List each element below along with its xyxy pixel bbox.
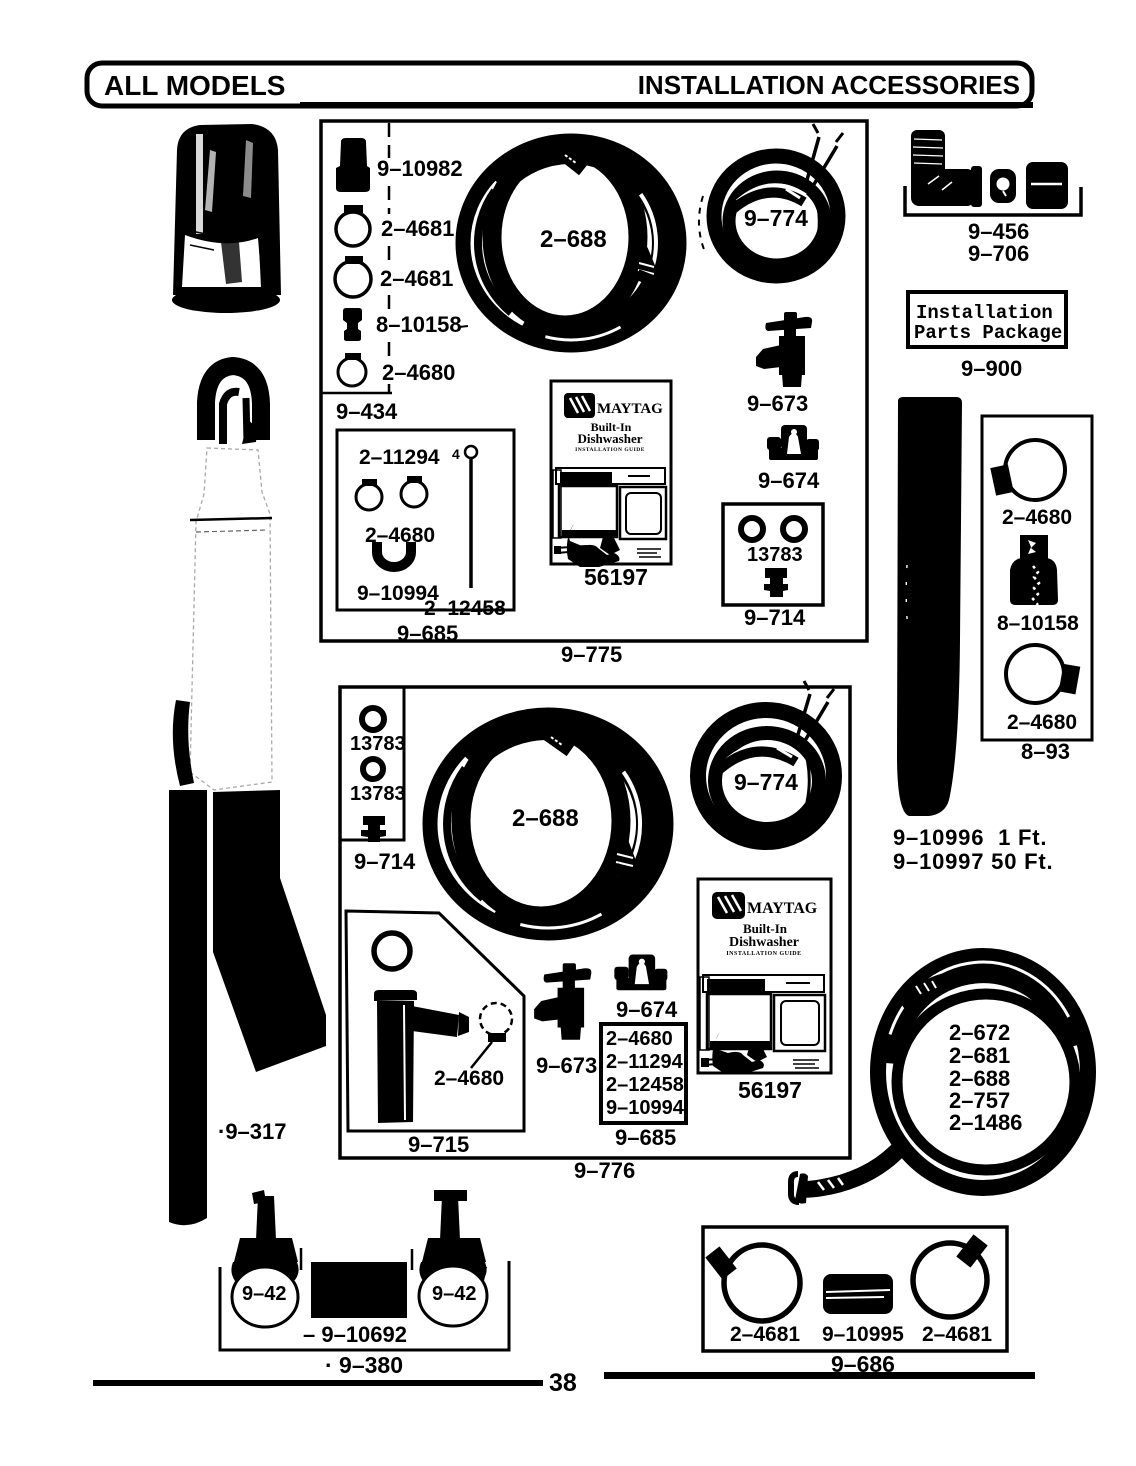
svg-text:9–10995: 9–10995 — [822, 1323, 904, 1346]
svg-text:9–714: 9–714 — [354, 849, 416, 874]
svg-text:2–4680: 2–4680 — [382, 360, 455, 385]
svg-text:2–4680: 2–4680 — [606, 1028, 673, 1050]
svg-text:INSTALLATION GUIDE: INSTALLATION GUIDE — [575, 447, 645, 453]
svg-text:INSTALLATION GUIDE: INSTALLATION GUIDE — [726, 951, 801, 957]
svg-text:8–93: 8–93 — [1021, 739, 1070, 764]
svg-text:· 9–380: · 9–380 — [325, 1352, 403, 1378]
svg-text:Dishwasher: Dishwasher — [729, 935, 799, 950]
svg-text:2–672: 2–672 — [949, 1020, 1010, 1045]
svg-text:9–674: 9–674 — [758, 468, 820, 493]
svg-text:9–706: 9–706 — [968, 241, 1029, 266]
svg-text:INSTALLATION ACCESSORIES: INSTALLATION ACCESSORIES — [638, 70, 1020, 100]
svg-text:2–688: 2–688 — [540, 226, 607, 253]
svg-text:Installation: Installation — [916, 302, 1053, 324]
svg-text:·9–317: ·9–317 — [218, 1119, 287, 1144]
svg-text:2–4680: 2–4680 — [1002, 506, 1072, 529]
svg-text:9–715: 9–715 — [408, 1132, 469, 1157]
svg-text:2–12458: 2–12458 — [424, 597, 506, 620]
svg-text:MAYTAG: MAYTAG — [747, 900, 818, 917]
svg-text:9–900: 9–900 — [961, 356, 1022, 381]
svg-text:9–673: 9–673 — [747, 391, 808, 416]
svg-text:2–11294: 2–11294 — [359, 446, 440, 469]
svg-text:MAYTAG: MAYTAG — [597, 401, 663, 417]
svg-text:9–434: 9–434 — [336, 399, 398, 424]
svg-text:2–4680: 2–4680 — [1007, 711, 1077, 734]
svg-text:4: 4 — [452, 446, 460, 462]
svg-text:9–10982: 9–10982 — [377, 156, 463, 181]
svg-text:Parts Package: Parts Package — [914, 322, 1062, 344]
svg-text:9–774: 9–774 — [744, 205, 808, 231]
svg-text:2–681: 2–681 — [949, 1043, 1010, 1068]
svg-text:2–4681: 2–4681 — [381, 216, 454, 241]
svg-text:9–10994: 9–10994 — [606, 1097, 685, 1119]
svg-text:2–1486: 2–1486 — [949, 1110, 1022, 1135]
svg-text:2–4680: 2–4680 — [434, 1067, 504, 1090]
svg-text:9–674: 9–674 — [616, 997, 678, 1022]
svg-text:8–10158: 8–10158 — [997, 612, 1079, 635]
svg-text:9–42: 9–42 — [432, 1283, 477, 1305]
svg-text:Dishwasher: Dishwasher — [577, 431, 642, 446]
svg-text:9–10997 50 Ft.: 9–10997 50 Ft. — [893, 849, 1053, 874]
svg-text:2–688: 2–688 — [512, 805, 579, 832]
svg-text:9–774: 9–774 — [734, 769, 798, 795]
svg-text:ALL MODELS: ALL MODELS — [104, 70, 285, 101]
svg-text:9–685: 9–685 — [615, 1125, 676, 1150]
svg-text:2–11294: 2–11294 — [606, 1051, 684, 1073]
svg-text:8–10158: 8–10158 — [376, 312, 462, 337]
svg-text:13783: 13783 — [747, 544, 803, 566]
svg-text:9–10996 1 Ft.: 9–10996 1 Ft. — [893, 825, 1047, 850]
svg-text:38: 38 — [549, 1369, 577, 1397]
svg-text:56197: 56197 — [584, 564, 648, 590]
svg-text:2–4681: 2–4681 — [922, 1323, 992, 1346]
svg-text:9–673: 9–673 — [536, 1053, 597, 1078]
svg-text:9–714: 9–714 — [744, 605, 806, 630]
svg-text:Built-In: Built-In — [743, 921, 788, 936]
svg-text:9–775: 9–775 — [561, 642, 622, 667]
svg-text:2–4681: 2–4681 — [380, 266, 453, 291]
svg-text:2–12458: 2–12458 — [606, 1074, 684, 1096]
svg-text:– 9–10692: – 9–10692 — [303, 1322, 407, 1347]
svg-text:13783: 13783 — [350, 783, 406, 805]
svg-text:9–685: 9–685 — [397, 621, 458, 646]
svg-text:13783: 13783 — [350, 733, 406, 755]
svg-text:9–42: 9–42 — [242, 1283, 287, 1305]
svg-text:56197: 56197 — [738, 1077, 802, 1103]
svg-text:9–776: 9–776 — [574, 1158, 635, 1183]
svg-text:2–4681: 2–4681 — [730, 1323, 800, 1346]
